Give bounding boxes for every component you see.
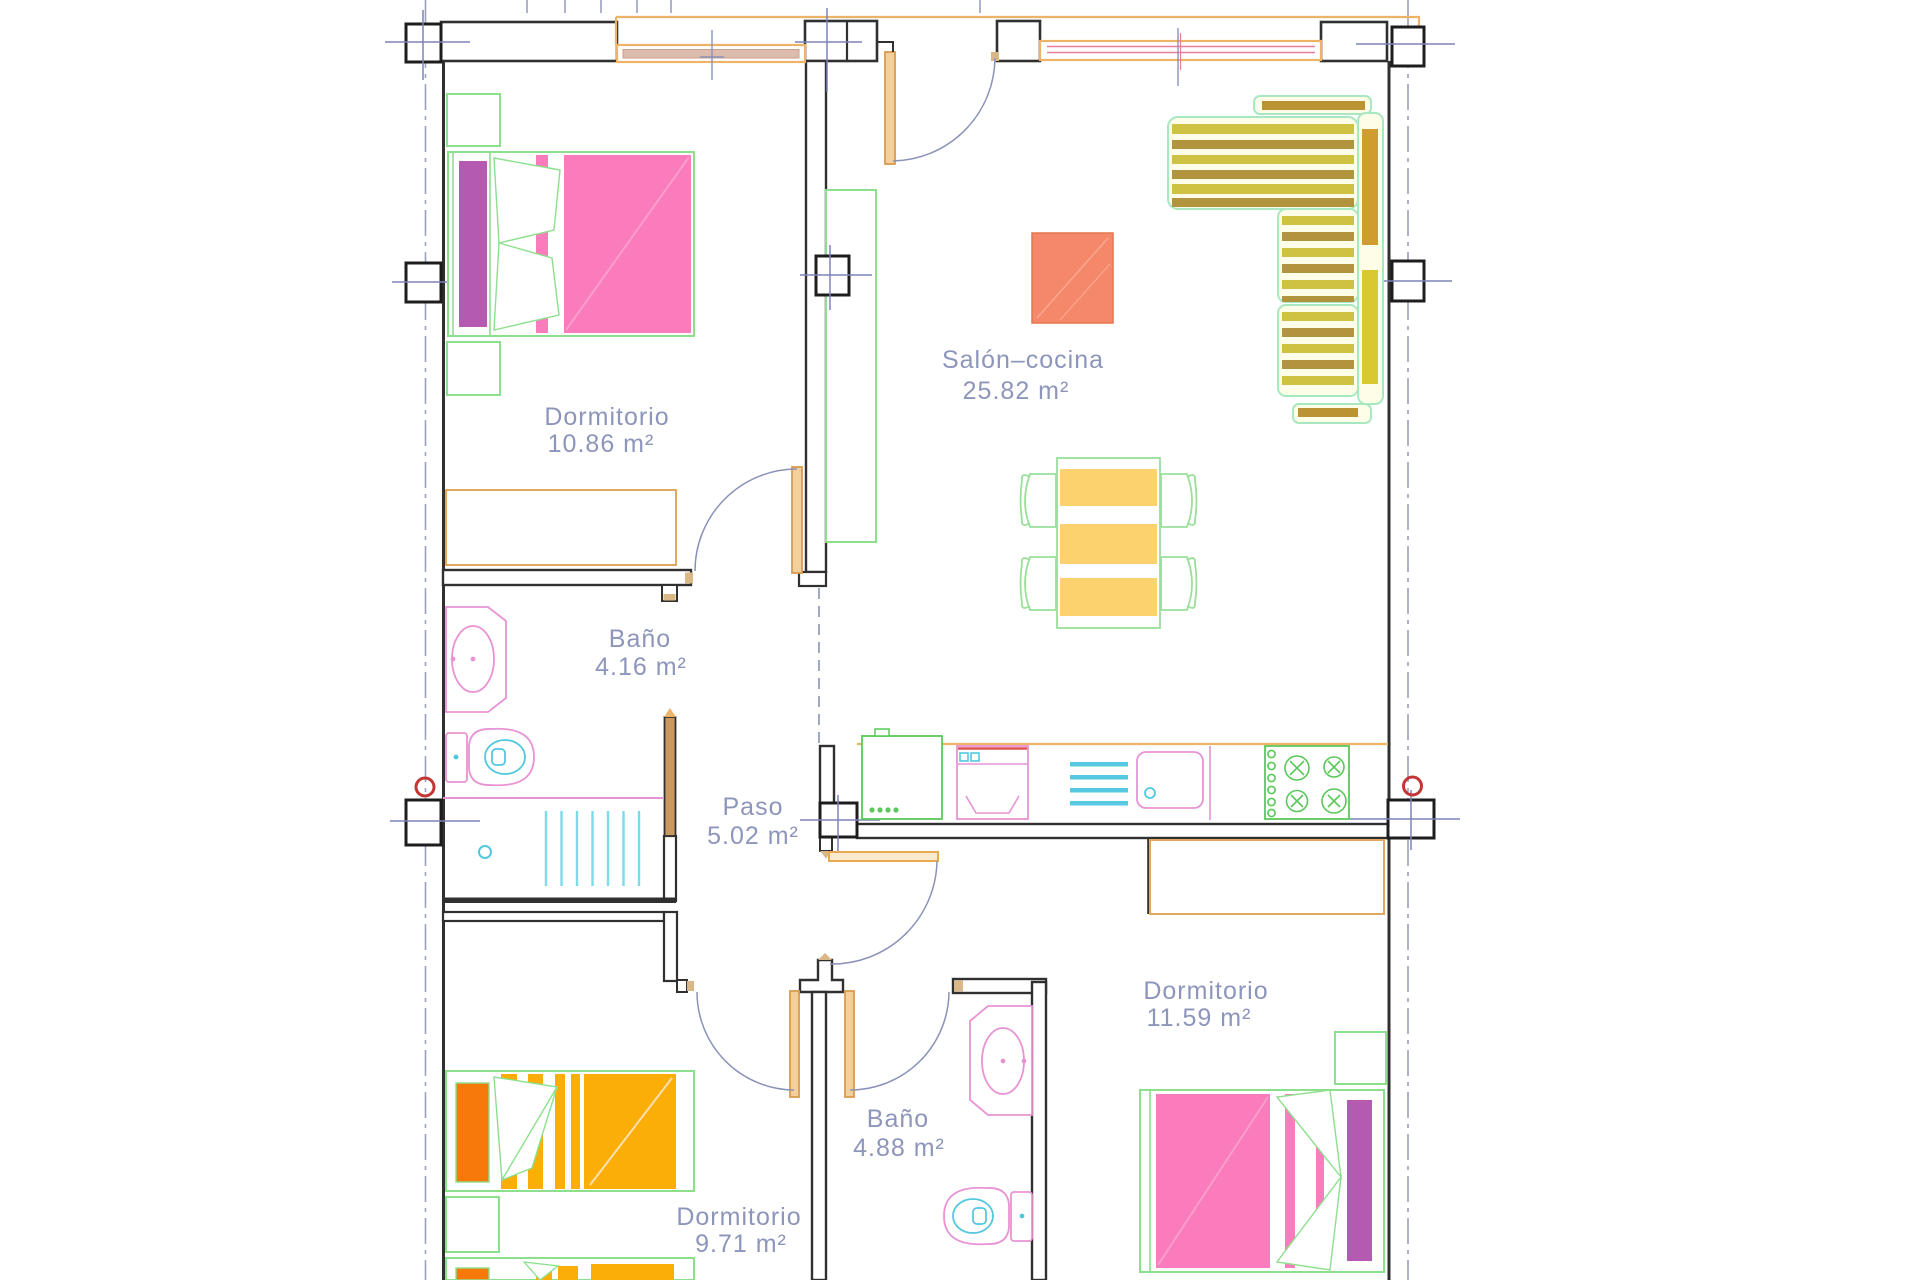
svg-text:Dormitorio: Dormitorio <box>676 1203 801 1231</box>
svg-text:10.86 m²: 10.86 m² <box>548 430 655 458</box>
svg-text:9.71 m²: 9.71 m² <box>695 1230 787 1258</box>
svg-text:Dormitorio: Dormitorio <box>544 403 669 431</box>
svg-text:Salón–cocina: Salón–cocina <box>942 346 1104 374</box>
svg-text:Paso: Paso <box>723 793 784 821</box>
svg-text:11.59 m²: 11.59 m² <box>1147 1004 1252 1032</box>
svg-text:4.16 m²: 4.16 m² <box>595 653 687 681</box>
svg-text:5.02 m²: 5.02 m² <box>707 822 799 850</box>
svg-text:Baño: Baño <box>609 625 671 653</box>
svg-text:4.88 m²: 4.88 m² <box>853 1134 945 1162</box>
svg-text:25.82 m²: 25.82 m² <box>963 377 1070 405</box>
svg-text:Dormitorio: Dormitorio <box>1143 977 1268 1005</box>
svg-text:Baño: Baño <box>867 1105 929 1133</box>
